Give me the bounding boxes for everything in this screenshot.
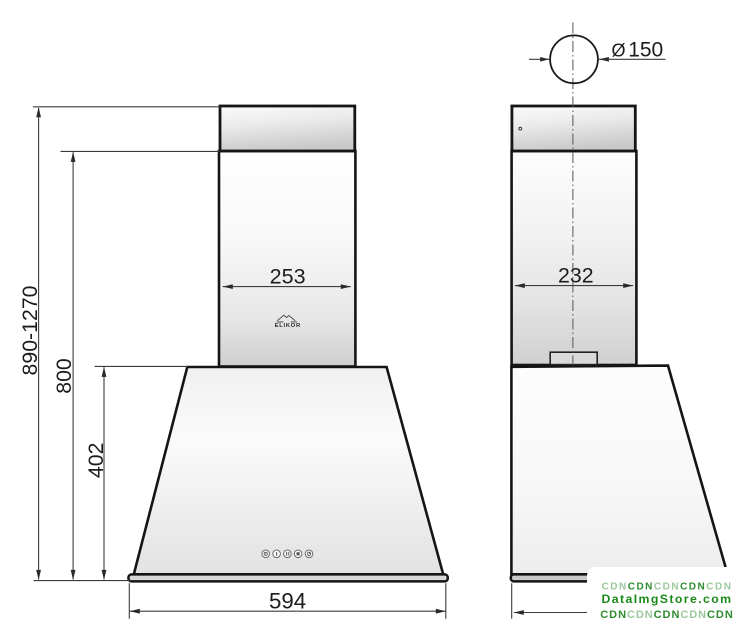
svg-text:ELIKOR: ELIKOR	[275, 323, 301, 329]
svg-text:232: 232	[558, 264, 594, 288]
svg-text:CDNCDNCDNCDNCDN: CDNCDNCDNCDNCDN	[602, 582, 733, 593]
svg-text:594: 594	[269, 588, 306, 613]
svg-text:402: 402	[84, 443, 108, 479]
svg-text:253: 253	[270, 264, 306, 288]
svg-text:800: 800	[52, 358, 76, 394]
svg-text:CDNCDNCDNCDNCDN: CDNCDNCDNCDNCDN	[600, 609, 733, 621]
svg-text:890-1270: 890-1270	[18, 285, 42, 375]
svg-text:DataImgStore.com: DataImgStore.com	[601, 592, 732, 606]
svg-text:Ø150: Ø150	[612, 39, 664, 62]
